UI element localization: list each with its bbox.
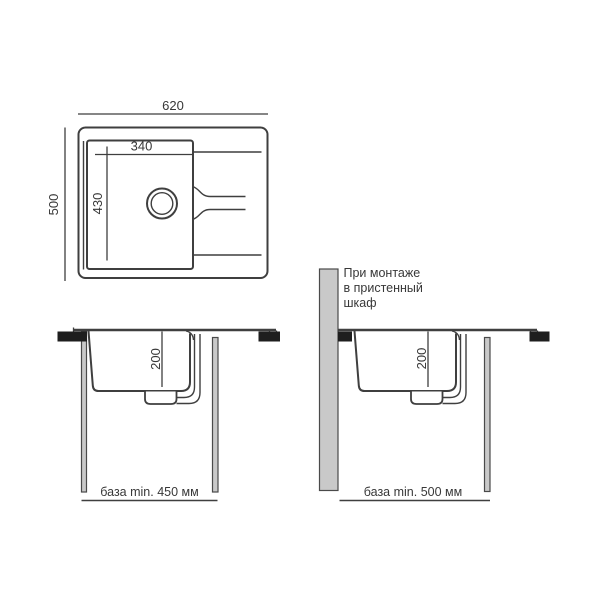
mounting-note-line-2: в пристенный [344,281,423,295]
base-dim-label: база min. 450 мм [100,485,198,499]
mounting-clamp-right [530,332,550,342]
bowl-profile [355,331,457,391]
wall-panel [320,269,339,491]
section-view-left: 200 база min. 450 мм [58,328,281,501]
bowl-profile [89,331,191,391]
overflow-pipe-inner [177,334,195,398]
overflow-pipe-inner [443,334,461,398]
cabinet-left-panel [82,331,87,492]
mounting-clamp-left [58,332,88,342]
drainboard-channel-upper [193,187,246,197]
cabinet-right-panel [213,338,219,493]
dim-label-bowl-depth-section: 200 [148,348,163,370]
drain-bump [145,392,177,405]
overflow-pipe-outer [443,334,467,404]
drain-inner-circle [151,193,173,215]
drainboard-channel-lower [193,210,246,220]
bowl-section [355,331,467,404]
mounting-note-line-1: При монтаже [344,266,421,280]
mounting-clamp-right [259,332,281,342]
mounting-note-line-3: шкаф [344,296,377,310]
mounting-clamp-left [338,332,352,342]
dim-label-bowl-depth-section: 200 [414,348,429,370]
dim-label-overall-width: 620 [162,98,184,113]
top-view: 620 500 340 430 [46,98,268,281]
section-view-right: При монтаже в пристенный шкаф 200 база m… [320,266,550,501]
drain-bump [411,392,443,405]
dim-label-bowl-width: 340 [131,139,153,154]
cabinet-right-panel [485,338,491,492]
base-dim-label: база min. 500 мм [364,485,462,499]
overflow-pipe-outer [177,334,201,404]
dim-label-bowl-depth: 430 [90,193,105,215]
sink-technical-drawing: 620 500 340 430 [0,0,600,600]
drawing-canvas: 620 500 340 430 [0,0,600,600]
bowl-section [89,331,201,404]
dim-label-overall-depth: 500 [46,194,61,216]
